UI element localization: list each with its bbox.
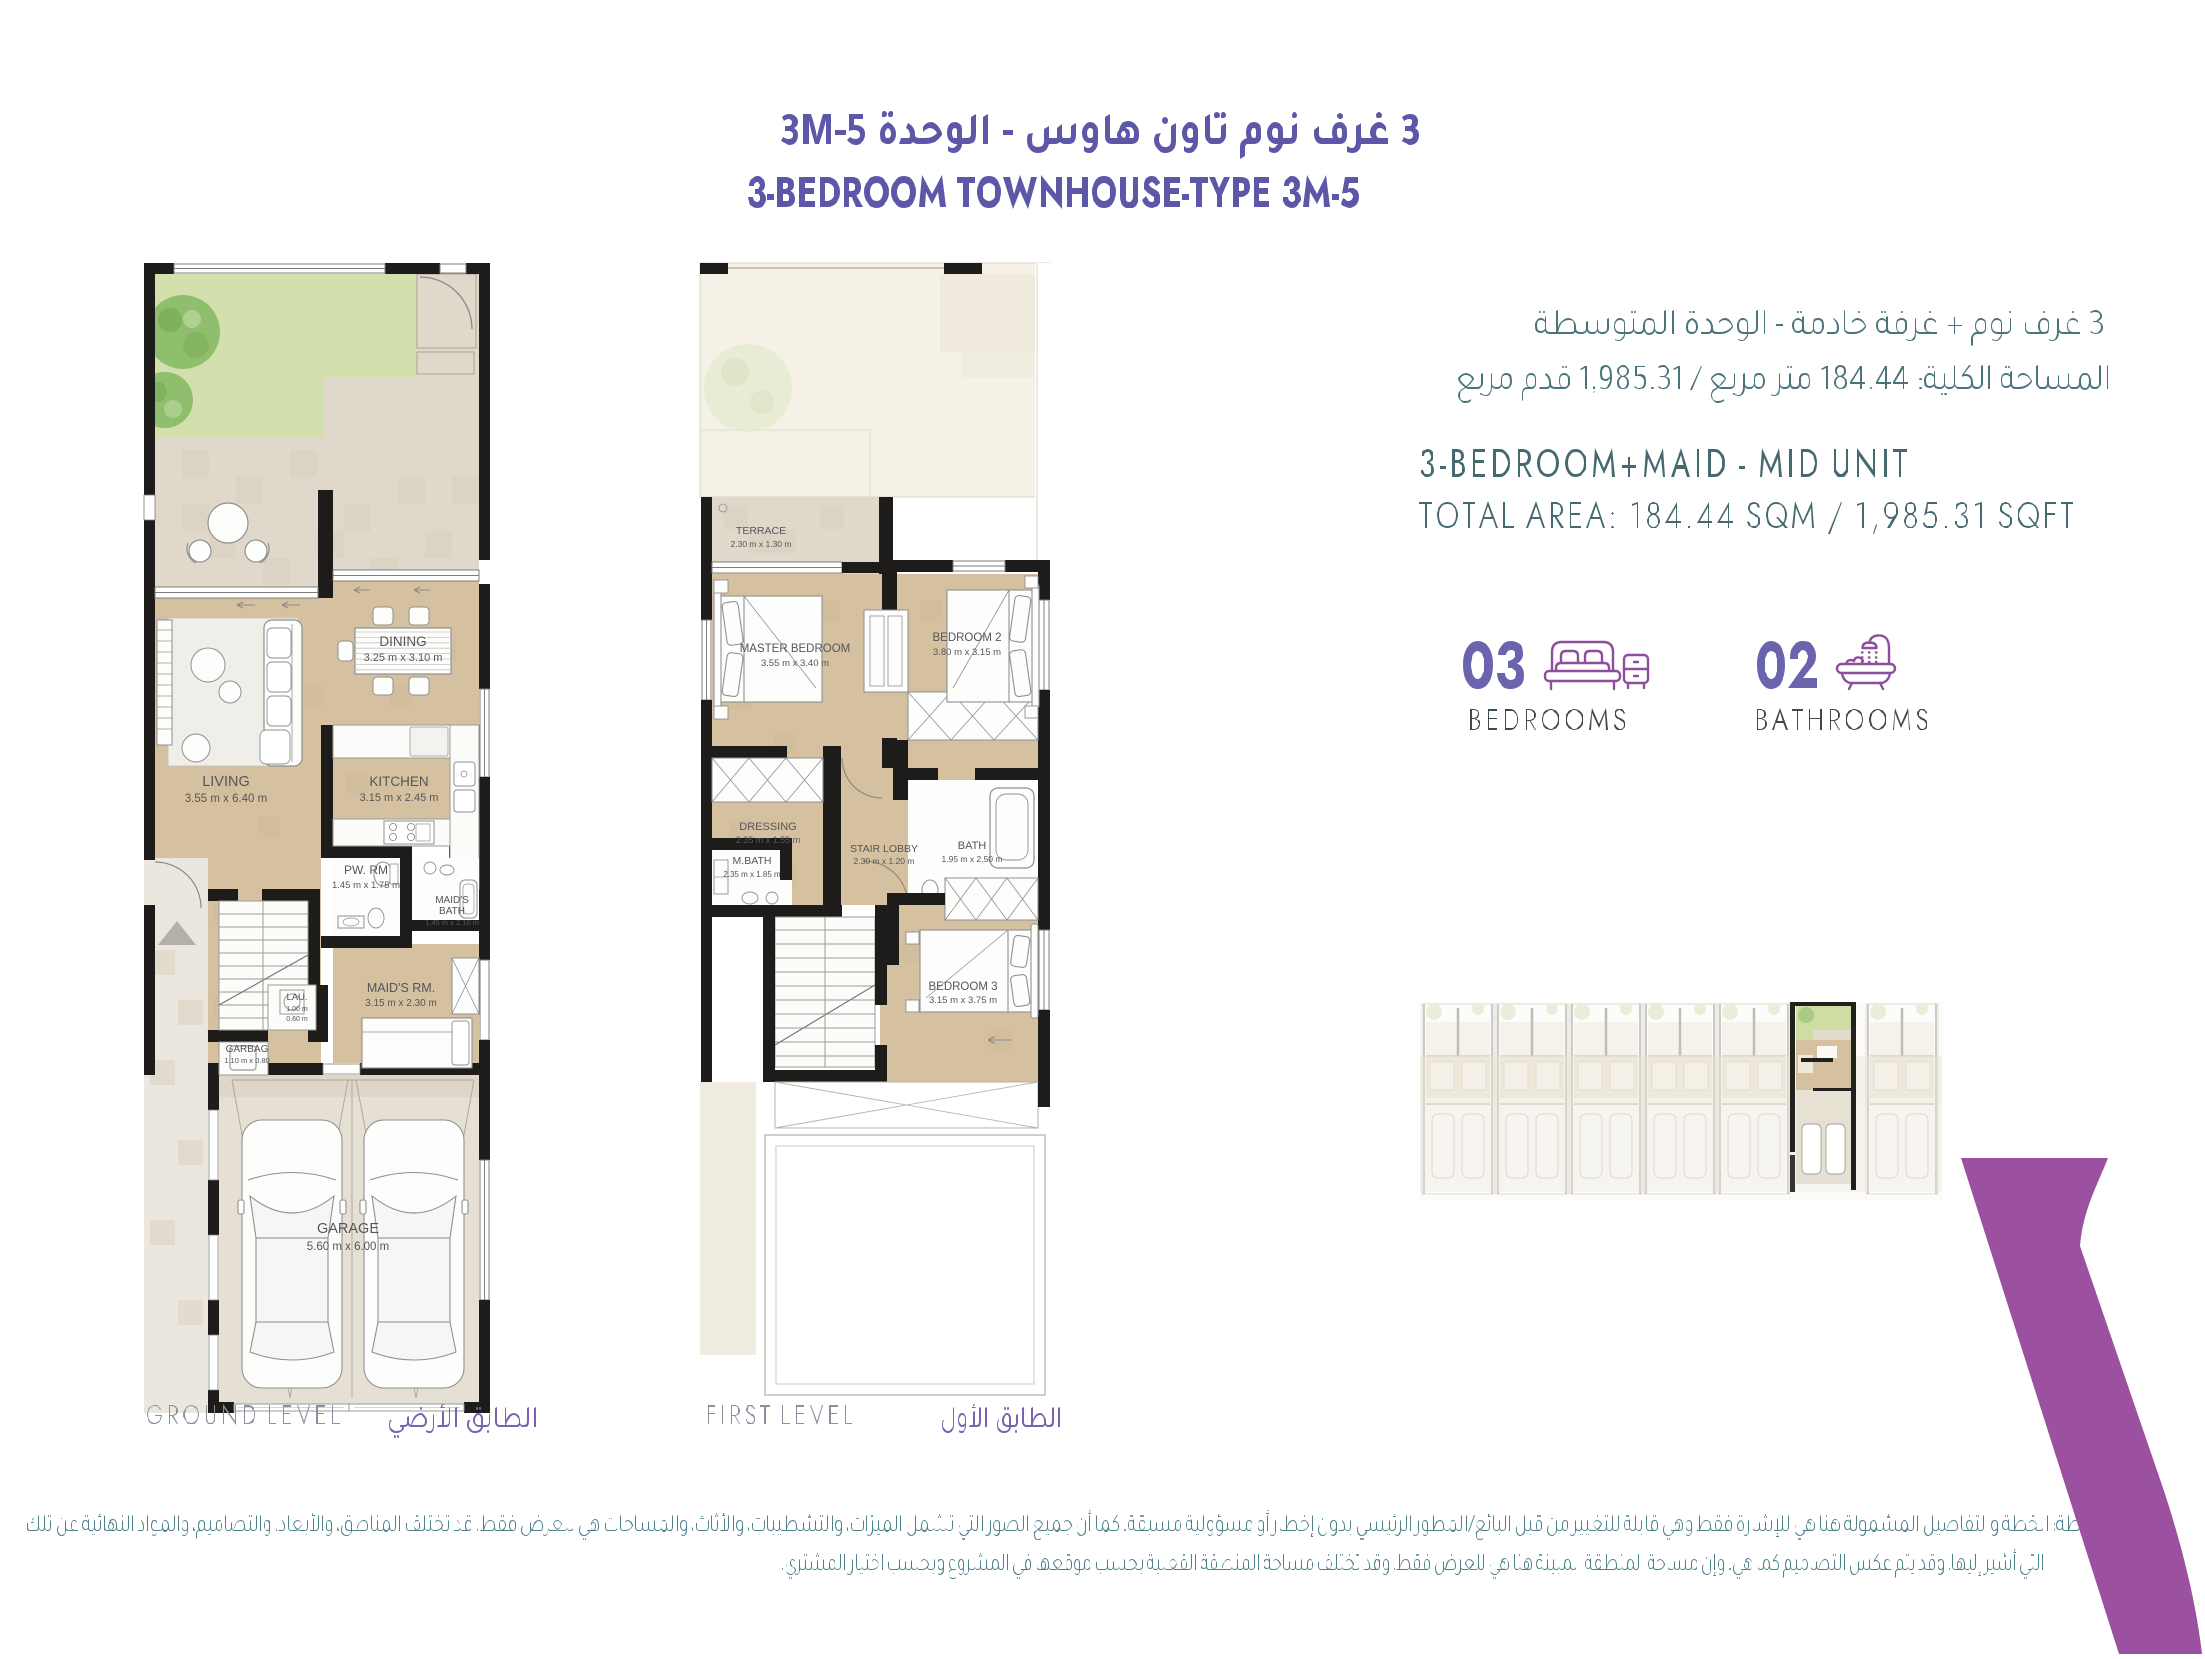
svg-text:BEDROOM 3: BEDROOM 3 — [928, 981, 997, 993]
svg-text:3.25 m x 3.10 m: 3.25 m x 3.10 m — [364, 652, 443, 664]
svg-text:0.60 m: 0.60 m — [286, 1016, 308, 1023]
svg-text:2.35 m x 1.55 m: 2.35 m x 1.55 m — [736, 835, 801, 845]
svg-text:MAID'S RM.: MAID'S RM. — [367, 981, 435, 995]
svg-text:LAU.: LAU. — [286, 992, 307, 1003]
svg-text:1.45 m x 1.75 m: 1.45 m x 1.75 m — [332, 880, 400, 891]
svg-text:2.30 m x 1.30 m: 2.30 m x 1.30 m — [731, 539, 792, 549]
svg-text:KITCHEN: KITCHEN — [369, 774, 428, 789]
svg-text:GARBAG: GARBAG — [226, 1044, 269, 1055]
svg-text:M.BATH: M.BATH — [733, 855, 772, 867]
svg-text:5.60 m x 6.00 m: 5.60 m x 6.00 m — [307, 1241, 389, 1253]
svg-text:1.45 m x 2.10 m: 1.45 m x 2.10 m — [425, 918, 479, 927]
svg-text:2.30 m x 1.20 m: 2.30 m x 1.20 m — [854, 856, 915, 866]
svg-text:3.15 m x 2.45 m: 3.15 m x 2.45 m — [360, 792, 439, 804]
svg-text:3.55 m x 6.40 m: 3.55 m x 6.40 m — [185, 793, 267, 805]
svg-text:DRESSING: DRESSING — [739, 821, 796, 833]
svg-text:2.35 m x 1.85 m: 2.35 m x 1.85 m — [723, 870, 781, 879]
svg-text:BEDROOM 2: BEDROOM 2 — [932, 632, 1001, 644]
svg-text:1.10 m x 0.80: 1.10 m x 0.80 — [224, 1056, 269, 1065]
svg-text:1.00 m: 1.00 m — [286, 1006, 308, 1013]
svg-text:TERRACE: TERRACE — [736, 525, 786, 537]
svg-text:MAID'S: MAID'S — [435, 895, 469, 906]
svg-text:BATH: BATH — [439, 906, 465, 917]
svg-text:STAIR LOBBY: STAIR LOBBY — [850, 843, 918, 855]
svg-text:BATH: BATH — [958, 840, 987, 852]
svg-text:3.15 m x 3.75 m: 3.15 m x 3.75 m — [929, 995, 997, 1006]
svg-text:3.55 m x 3.40 m: 3.55 m x 3.40 m — [761, 658, 829, 669]
svg-text:GARAGE: GARAGE — [317, 1221, 379, 1237]
svg-text:MASTER BEDROOM: MASTER BEDROOM — [740, 643, 851, 655]
svg-text:3.80 m x 3.15 m: 3.80 m x 3.15 m — [933, 647, 1001, 658]
svg-text:1.95 m x 2.50 m: 1.95 m x 2.50 m — [942, 854, 1003, 864]
svg-text:PW. RM: PW. RM — [344, 863, 388, 877]
svg-text:LIVING: LIVING — [202, 774, 250, 790]
svg-text:3.15 m x 2.30 m: 3.15 m x 2.30 m — [365, 998, 437, 1009]
svg-text:DINING: DINING — [379, 634, 426, 649]
